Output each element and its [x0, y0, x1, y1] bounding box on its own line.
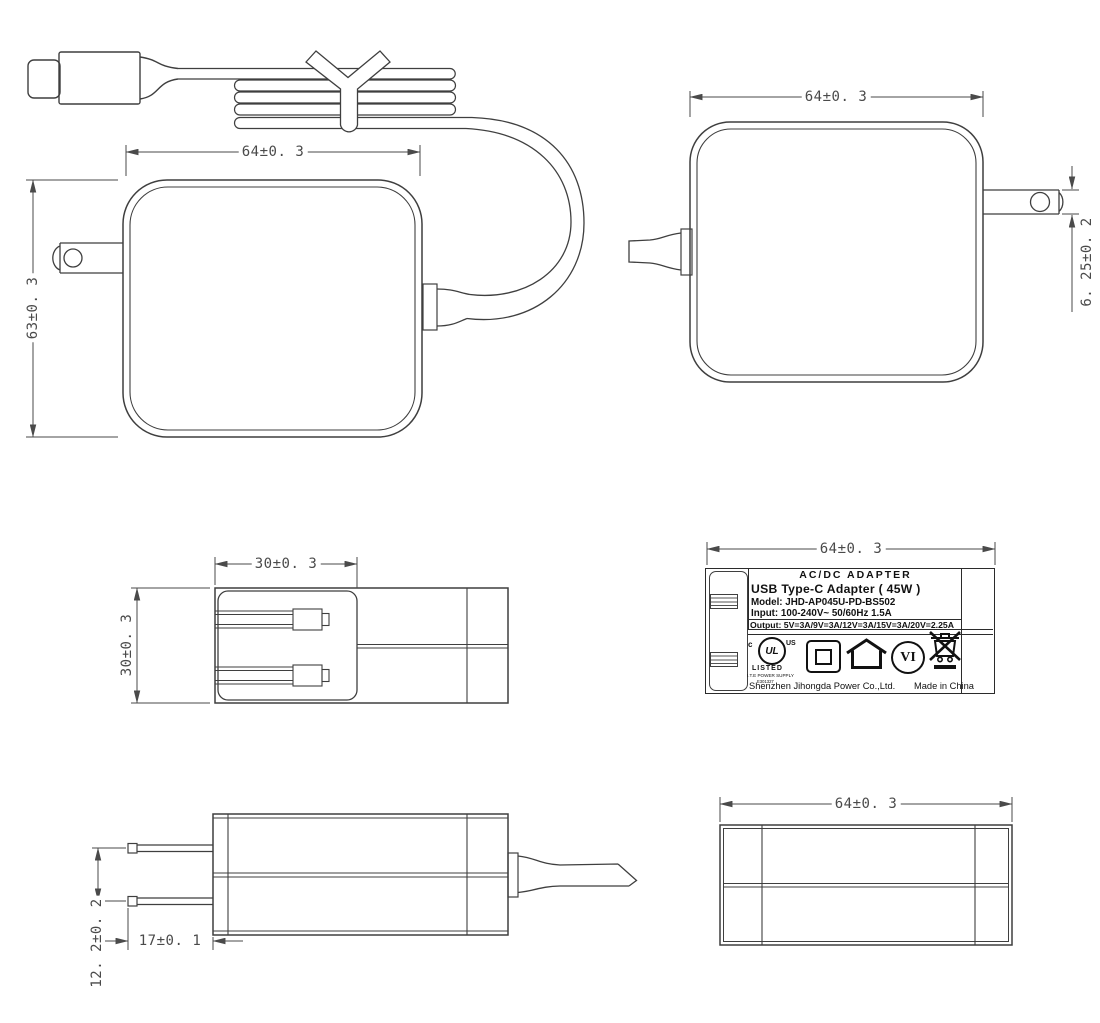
- class-ii-double-insulation-icon: [806, 640, 841, 673]
- indoor-use-house-icon: [845, 637, 888, 671]
- dim-back-width: 64±0. 3: [802, 89, 871, 105]
- ul-mark-text: UL: [765, 646, 778, 657]
- usb-c-connector: [28, 52, 178, 104]
- cable-arc: [423, 118, 584, 331]
- prong-cross-section-1: [710, 594, 738, 609]
- label-origin: Made in China: [914, 682, 974, 692]
- back-cable-exit: [629, 229, 692, 275]
- label-output: Output: 5V=3A/9V=3A/12V=3A/15V=3A/20V=2.…: [750, 621, 954, 630]
- dimension-lines: [26, 91, 1079, 988]
- efficiency-level-vi-icon: VI: [891, 641, 925, 674]
- front-view-linework: [28, 51, 584, 437]
- folded-prong-1: [215, 609, 329, 630]
- ul-listed-text: LISTED: [752, 665, 783, 672]
- dim-bottom-width: 64±0. 3: [832, 796, 901, 812]
- label-input: Input: 100-240V~ 50/60Hz 1.5A: [751, 609, 892, 619]
- ul-listed-icon: UL: [758, 637, 786, 665]
- class-ii-inner-square: [815, 649, 832, 665]
- label-view-plug-module: [709, 571, 748, 691]
- technical-drawing: 64±0. 3 63±0. 3 64±0. 3 6. 25±0. 2 30±0.…: [0, 0, 1100, 1023]
- back-prong: [983, 190, 1063, 214]
- dim-label-width: 64±0. 3: [817, 541, 886, 557]
- prong-hole: [64, 249, 82, 267]
- side-prong-1: [128, 844, 213, 854]
- dim-prong-thickness: 6. 25±0. 2: [1079, 214, 1095, 309]
- dim-plug-width: 30±0. 3: [252, 556, 321, 572]
- weee-crossed-bin-icon: [928, 629, 962, 671]
- drawing-linework: [0, 0, 1100, 1023]
- dim-top-depth: 30±0. 3: [119, 611, 135, 680]
- top-view-linework: [215, 588, 508, 703]
- label-product: USB Type-C Adapter ( 45W ): [751, 583, 921, 596]
- label-title: AC/DC ADAPTER: [750, 570, 961, 581]
- efficiency-text: VI: [900, 650, 916, 666]
- dim-prong-pitch: 12. 2±0. 2: [89, 895, 105, 990]
- folded-prong-2: [215, 665, 329, 686]
- side-view-linework: [128, 814, 637, 935]
- side-cable-exit: [508, 853, 637, 897]
- dim-front-height: 63±0. 3: [25, 274, 41, 343]
- ul-us-text: US: [786, 640, 796, 647]
- label-company: Shenzhen Jihongda Power Co.,Ltd.: [749, 682, 895, 692]
- dim-prong-length: 17±0. 1: [136, 933, 205, 949]
- back-view-linework: [629, 122, 1063, 382]
- label-model: Model: JHD-AP045U-PD-BS502: [751, 598, 895, 608]
- prong-cross-section-2: [710, 652, 738, 667]
- dim-front-width: 64±0. 3: [239, 144, 308, 160]
- front-prong: [53, 243, 123, 273]
- bottom-view-linework: [720, 825, 1012, 945]
- ul-c-text: c: [748, 641, 752, 649]
- side-prong-2: [128, 897, 213, 907]
- prong-hole: [1031, 193, 1050, 212]
